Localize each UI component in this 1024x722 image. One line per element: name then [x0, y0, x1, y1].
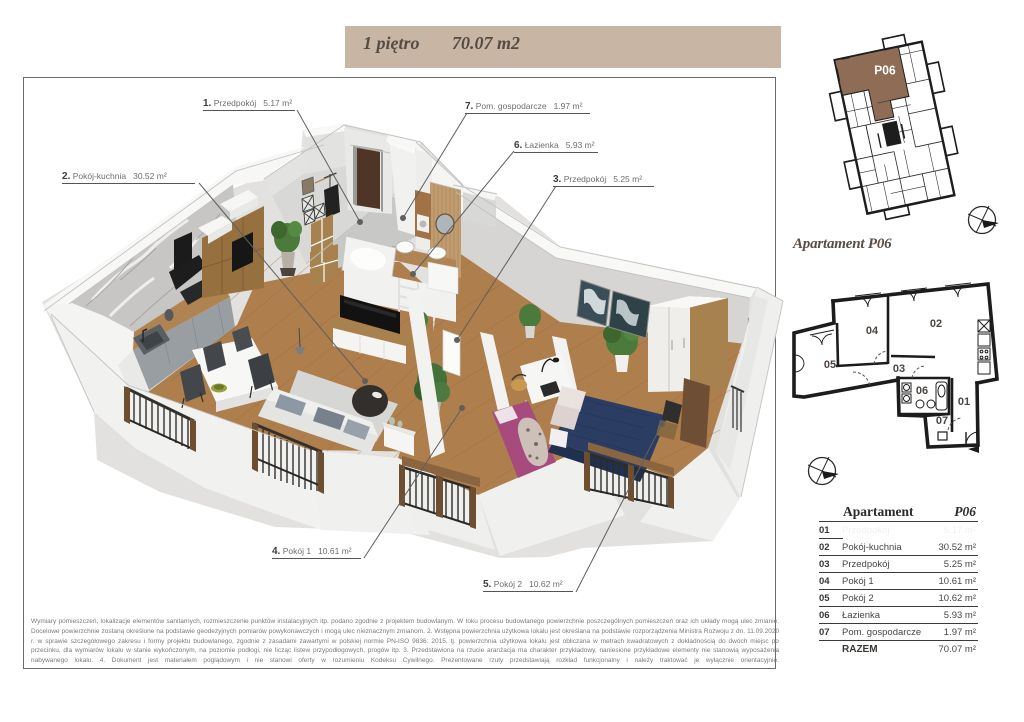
svg-text:04: 04 [866, 325, 879, 337]
svg-text:P06: P06 [874, 63, 896, 78]
svg-text:02: 02 [930, 318, 942, 330]
svg-text:01: 01 [958, 396, 970, 408]
svg-text:07: 07 [936, 415, 948, 427]
svg-text:06: 06 [916, 385, 928, 397]
svg-text:03: 03 [893, 363, 905, 375]
svg-text:05: 05 [824, 359, 836, 371]
